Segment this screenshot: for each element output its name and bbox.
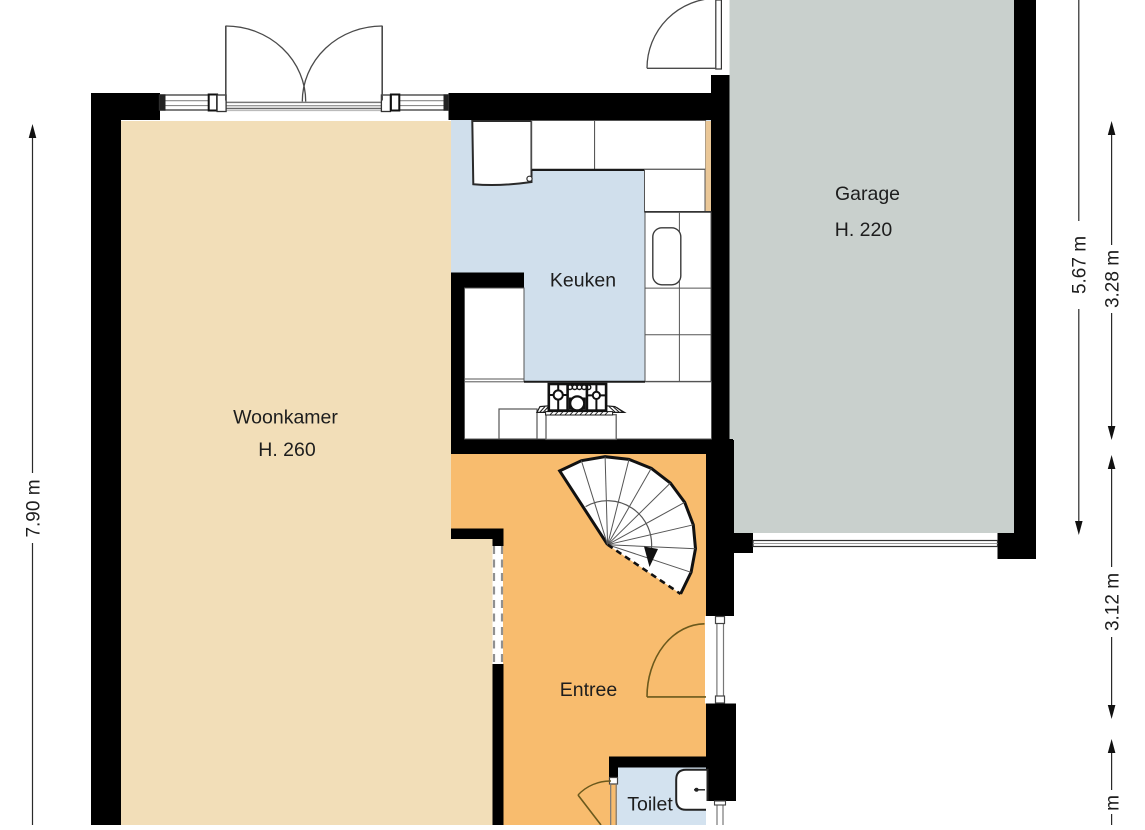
svg-text:Garage: Garage xyxy=(835,183,900,205)
svg-text:Toilet: Toilet xyxy=(627,793,673,815)
svg-text:Entree: Entree xyxy=(560,679,617,701)
svg-text:m: m xyxy=(1102,795,1123,811)
svg-text:Woonkamer: Woonkamer xyxy=(233,407,338,429)
svg-text:7.90 m: 7.90 m xyxy=(24,479,45,537)
svg-text:3.12 m: 3.12 m xyxy=(1102,573,1123,631)
svg-text:3.28 m: 3.28 m xyxy=(1102,250,1123,308)
svg-text:H. 260: H. 260 xyxy=(258,439,316,461)
svg-text:H. 220: H. 220 xyxy=(835,219,893,241)
svg-text:Keuken: Keuken xyxy=(550,270,616,292)
svg-text:5.67 m: 5.67 m xyxy=(1070,236,1091,294)
